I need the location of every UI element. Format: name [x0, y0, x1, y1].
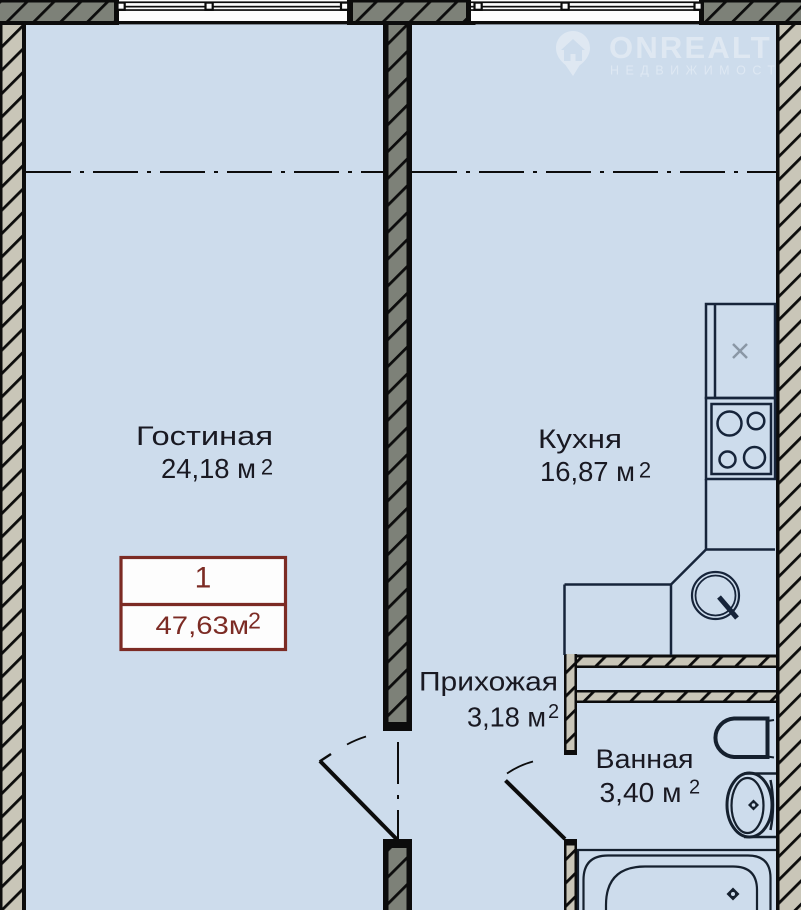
svg-text:1: 1	[195, 562, 212, 595]
svg-text:2: 2	[548, 701, 559, 723]
svg-text:НЕДВИЖИМОСТЬ: НЕДВИЖИМОСТЬ	[610, 64, 796, 78]
svg-text:Прихожая: Прихожая	[419, 667, 558, 697]
svg-text:47,63м: 47,63м	[156, 612, 250, 640]
svg-text:Кухня: Кухня	[538, 424, 622, 454]
svg-text:ONREALT: ONREALT	[609, 30, 772, 65]
svg-text:2: 2	[248, 608, 261, 634]
svg-text:3,18 м: 3,18 м	[467, 702, 546, 733]
svg-text:16,87 м: 16,87 м	[540, 456, 635, 487]
svg-text:3,40 м: 3,40 м	[600, 777, 682, 808]
svg-text:24,18 м: 24,18 м	[161, 453, 256, 484]
svg-text:Ванная: Ванная	[596, 744, 694, 774]
svg-text:Гостиная: Гостиная	[136, 421, 273, 451]
svg-text:2: 2	[689, 777, 700, 799]
svg-text:2: 2	[639, 458, 651, 483]
svg-text:2: 2	[261, 455, 273, 480]
